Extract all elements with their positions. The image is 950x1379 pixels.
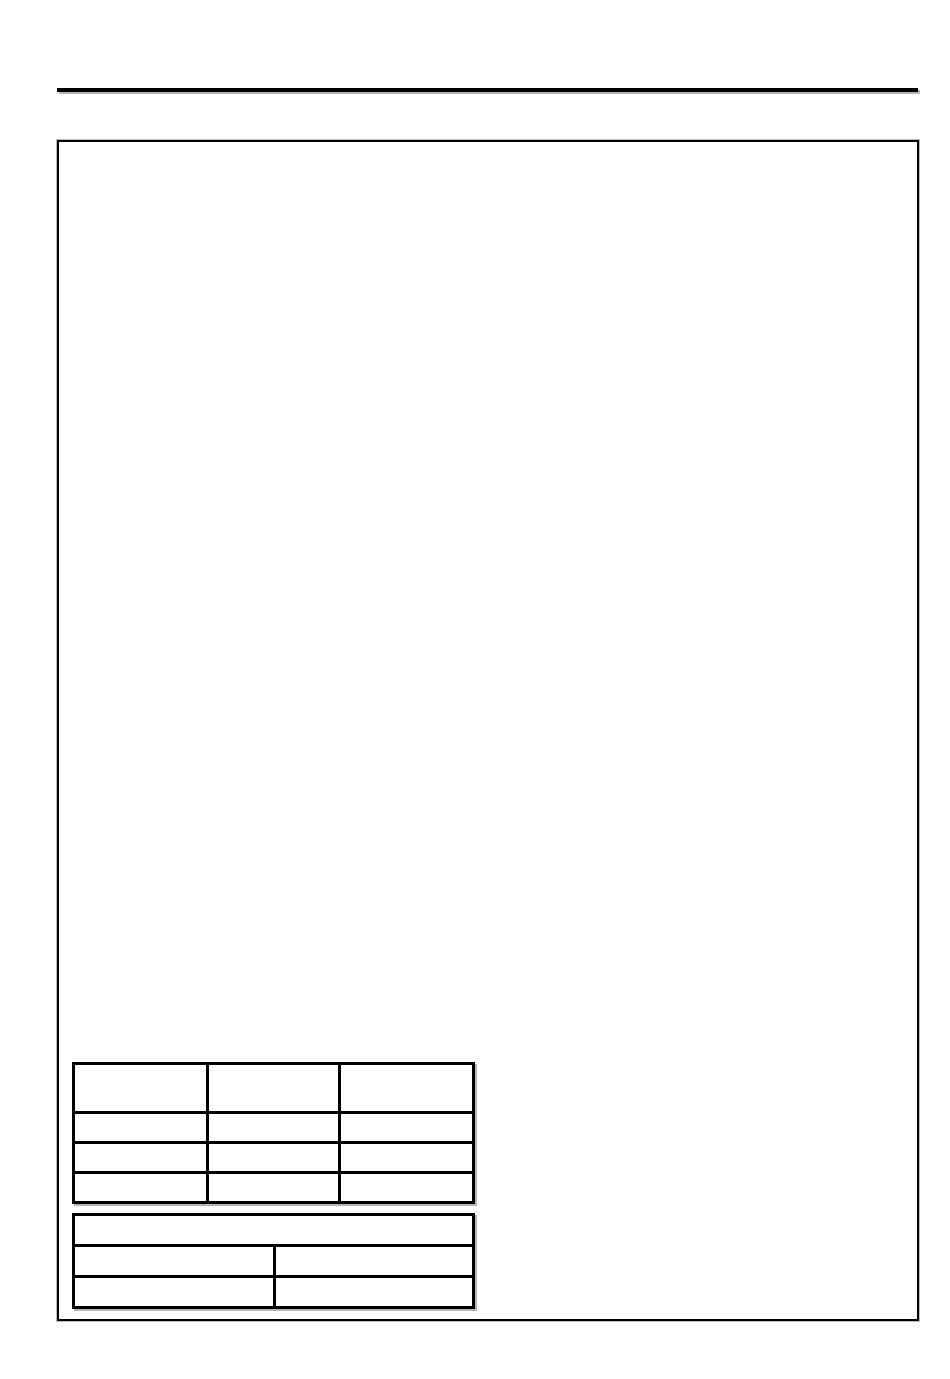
table-header-cell — [74, 1215, 474, 1246]
header-rule — [57, 88, 918, 92]
table-cell — [74, 1173, 208, 1203]
table-cell — [275, 1246, 474, 1277]
table-cell — [74, 1143, 208, 1173]
table-row — [74, 1143, 474, 1173]
table-cell — [208, 1064, 340, 1113]
table-cell — [74, 1277, 275, 1308]
upper-table — [72, 1062, 475, 1204]
table-cell — [340, 1143, 474, 1173]
table-cell — [74, 1064, 208, 1113]
table-cell — [340, 1064, 474, 1113]
table-cell — [208, 1143, 340, 1173]
table-cell — [340, 1173, 474, 1203]
lower-table — [72, 1213, 475, 1309]
table-row — [74, 1277, 474, 1308]
table-cell — [340, 1113, 474, 1143]
table-row — [74, 1215, 474, 1246]
table-row — [74, 1246, 474, 1277]
table-cell — [208, 1173, 340, 1203]
table-row — [74, 1113, 474, 1143]
table-row — [74, 1064, 474, 1113]
document-page — [0, 0, 950, 1379]
table-cell — [74, 1246, 275, 1277]
table-row — [74, 1173, 474, 1203]
table-cell — [275, 1277, 474, 1308]
table-cell — [74, 1113, 208, 1143]
table-cell — [208, 1113, 340, 1143]
